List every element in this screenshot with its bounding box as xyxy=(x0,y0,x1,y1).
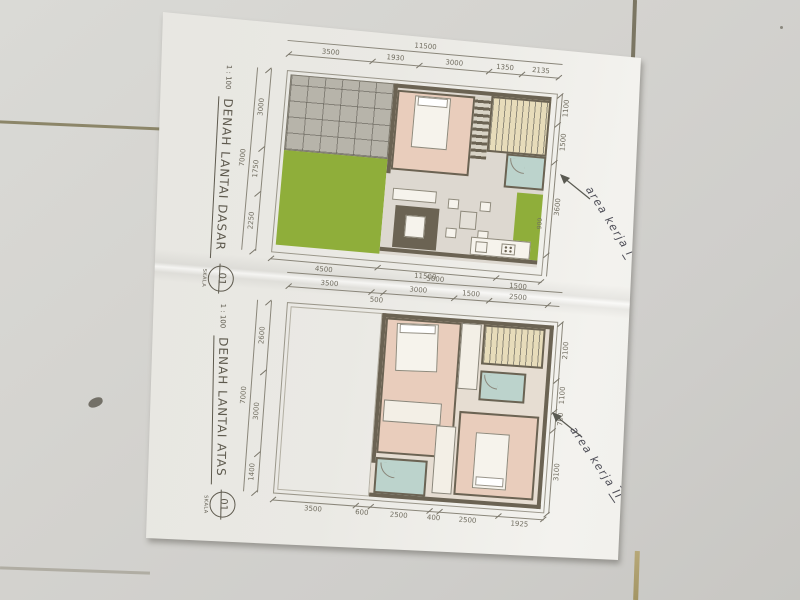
dim-segment: 2500 xyxy=(458,517,476,525)
void-area-below-roof xyxy=(277,306,382,496)
dim-segment: 3000 xyxy=(445,59,463,68)
dim-segment: 1500 xyxy=(559,133,568,151)
stair-hall xyxy=(487,96,552,157)
dim-segment: 3000 xyxy=(257,98,266,116)
dim-segment: 2135 xyxy=(532,67,550,76)
dim-segment: 500 xyxy=(369,297,383,305)
door-swing-arc xyxy=(509,158,525,174)
plan-title: DENAH LANTAI DASAR xyxy=(210,96,235,259)
dim-tick xyxy=(555,75,562,81)
dim-tick xyxy=(251,490,258,496)
ground-floor-plan: 11500 3500 1930 3000 1350 2135 7000 3000… xyxy=(271,70,558,276)
dim-segment: 2600 xyxy=(258,326,266,344)
dim-segment: 2100 xyxy=(562,341,570,359)
sheet-number-circle: 01 xyxy=(210,491,236,517)
upper-floor-plan: 11500 3500 500 3000 1500 2500 7000 2600 … xyxy=(273,302,558,513)
dim-segment: 1500 xyxy=(462,290,480,298)
dim-segment: 2250 xyxy=(247,211,256,229)
dim-segment: 3500 xyxy=(304,505,322,513)
dim-segment: 3100 xyxy=(553,463,561,481)
door-swing-arc xyxy=(379,462,395,478)
dim-segment: 900 xyxy=(537,218,544,230)
bed-pillow xyxy=(400,324,436,334)
title-block-ground-floor: 1 : 100 DENAH LANTAI DASAR 01 SKALA xyxy=(195,64,252,272)
dim-segment: 1350 xyxy=(496,64,514,73)
dim-segment: 3000 xyxy=(409,286,427,294)
bathroom-lower-left xyxy=(373,457,427,497)
handwritten-note-area-kerja-2: area kerjaII xyxy=(567,424,626,503)
dim-tick xyxy=(540,516,547,522)
bed-pillow xyxy=(475,476,504,487)
photo-of-floor-plan-sheet: 11500 3500 1930 3000 1350 2135 7000 3000… xyxy=(0,0,800,600)
dining-table xyxy=(459,211,478,230)
note-text: area kerja xyxy=(583,184,632,251)
bed-pillow xyxy=(417,97,448,109)
dim-segment: 2500 xyxy=(509,294,527,302)
dim-segment: 1925 xyxy=(510,520,528,528)
wardrobe xyxy=(383,399,442,425)
bed xyxy=(411,95,451,150)
dining-chair xyxy=(448,199,460,210)
handwritten-note-area-kerja-1: area kerjaI xyxy=(583,184,637,260)
note-text: area kerja xyxy=(567,424,617,490)
dim-segment: 4500 xyxy=(315,266,333,275)
bathroom-upper-right xyxy=(478,370,526,403)
bed-2 xyxy=(472,432,510,490)
dim-total-width: 11500 xyxy=(414,43,437,52)
plan-title: DENAH LANTAI ATAS xyxy=(211,335,231,485)
dim-segment: 1400 xyxy=(248,463,256,481)
carport-area xyxy=(284,74,394,159)
master-bed xyxy=(395,323,439,373)
scale-ratio: 1 : 100 xyxy=(224,65,233,90)
dining-chair xyxy=(445,227,457,238)
sheet-number-circle: 01 xyxy=(208,265,235,292)
skala-label: SKALA xyxy=(203,495,209,514)
dim-segment: 1750 xyxy=(252,160,261,178)
sheet-bubble: 01 SKALA xyxy=(201,265,235,293)
dim-segment: 1100 xyxy=(562,99,571,117)
garden-area-left xyxy=(276,150,388,254)
door-swing-arc xyxy=(483,375,498,390)
kitchen-sink xyxy=(475,241,488,253)
dim-segment: 1100 xyxy=(559,386,567,404)
paper-shadow: 11500 3500 1930 3000 1350 2135 7000 3000… xyxy=(0,0,800,600)
note-numeral: I xyxy=(622,247,638,261)
dim-segment: 3500 xyxy=(320,280,338,288)
dim-segment: 3500 xyxy=(321,48,339,57)
stairs-area xyxy=(481,324,546,368)
coffee-table xyxy=(404,215,426,239)
note-numeral: II xyxy=(608,485,627,503)
dim-segment: 3000 xyxy=(253,402,261,420)
bathroom-area xyxy=(504,153,547,190)
dim-segment: 600 xyxy=(355,509,369,517)
dim-tick xyxy=(249,249,256,255)
scale-ratio: 1 : 100 xyxy=(219,304,227,329)
dim-segment: 2500 xyxy=(389,512,407,520)
sheet-bubble: 01 SKALA xyxy=(203,491,236,518)
title-block-upper-floor: 1 : 100 DENAH LANTAI ATAS 01 SKALA xyxy=(196,303,246,510)
skala-label: SKALA xyxy=(201,269,208,288)
dim-segment: 400 xyxy=(427,514,441,522)
dining-chair xyxy=(479,201,491,212)
kitchen-stove xyxy=(501,243,516,255)
sofa-set xyxy=(392,205,439,251)
dim-segment: 1930 xyxy=(386,54,404,63)
paper-sheet: 11500 3500 1930 3000 1350 2135 7000 3000… xyxy=(0,0,800,600)
